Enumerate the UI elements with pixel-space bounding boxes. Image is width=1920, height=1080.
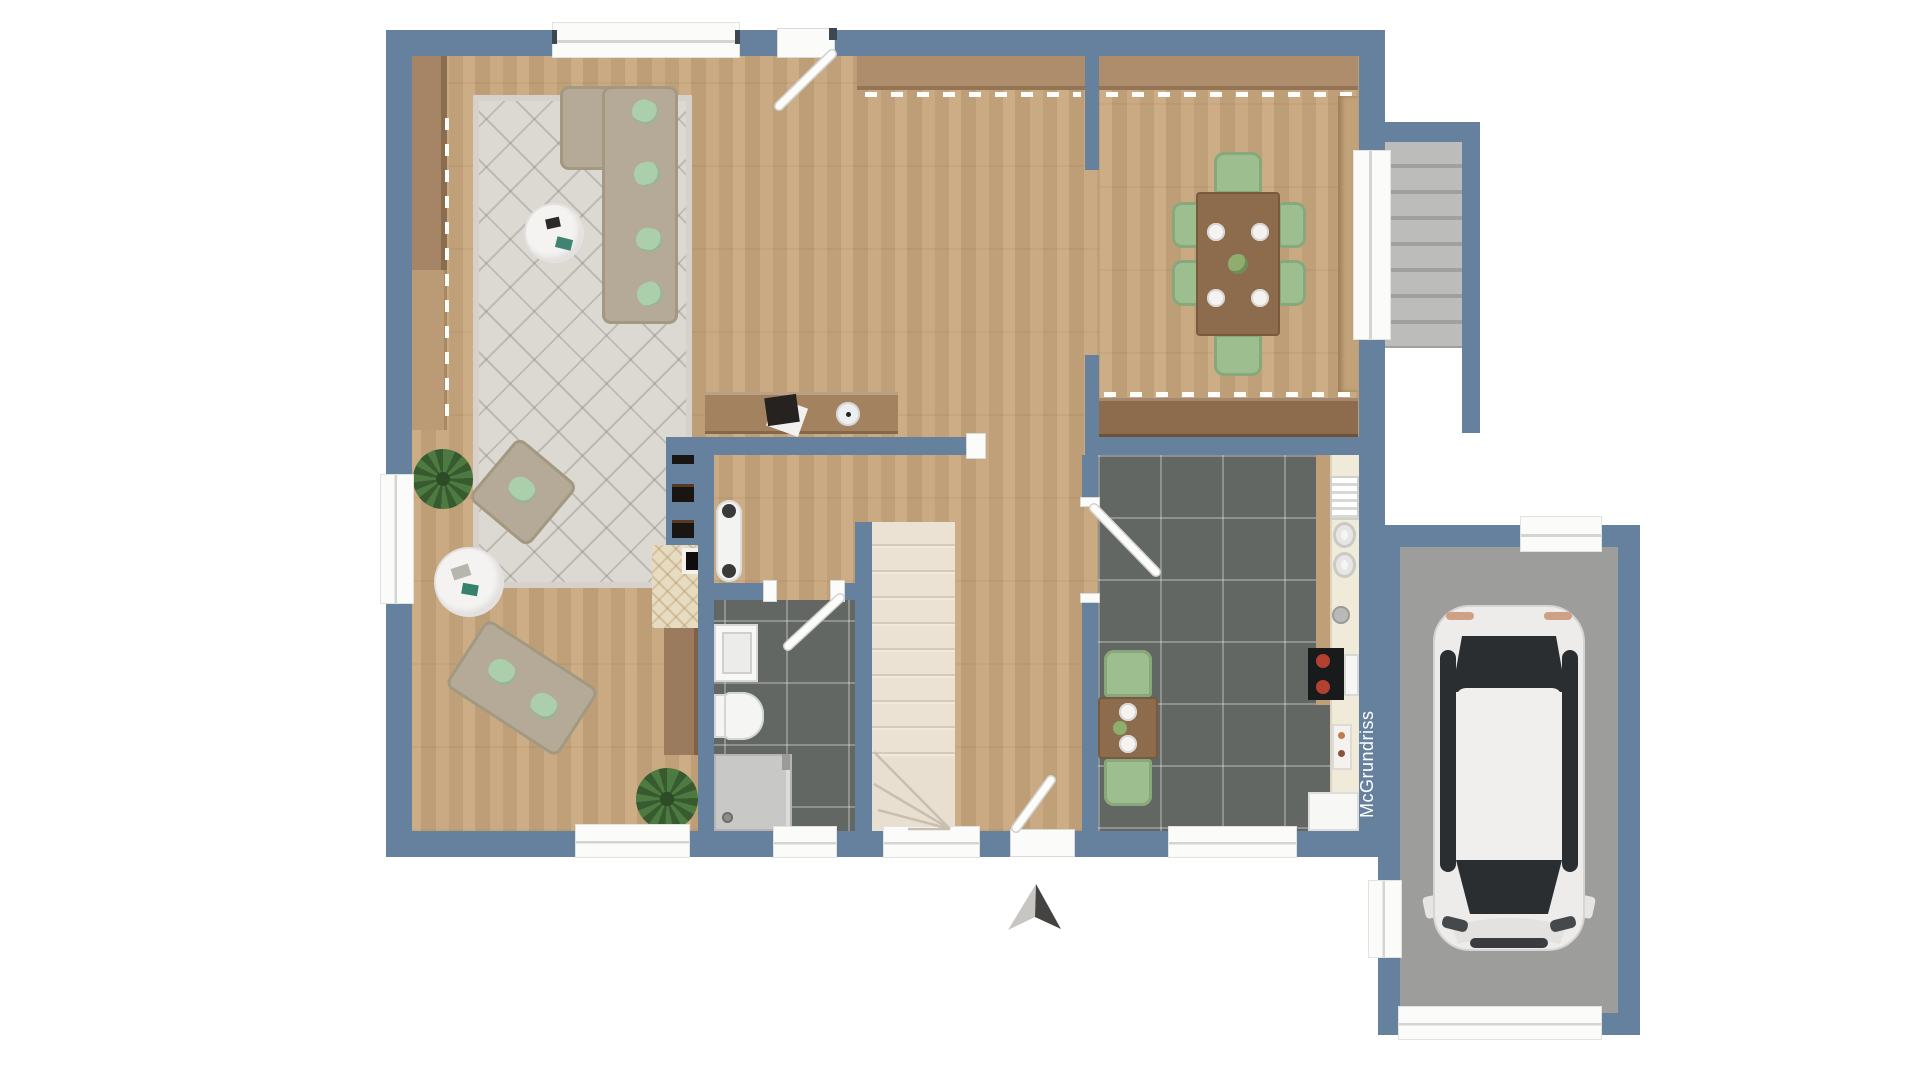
door-top-hinge [829, 28, 837, 40]
ceiling-dashed-line [445, 118, 449, 430]
shelf-box-3 [672, 520, 694, 538]
sideboard-west-lower [408, 270, 447, 430]
window-bottom-hall [883, 826, 980, 858]
kitchen-sink-basin-1 [1333, 522, 1356, 548]
desk-tv-box [764, 394, 800, 426]
desk-disc-dot [846, 412, 851, 417]
window-bottom-kitchen [1168, 826, 1297, 858]
sideboard-dining-dashes [1104, 392, 1354, 397]
kitchen-plate-1 [1119, 703, 1137, 721]
dining-chair-right-1 [1278, 202, 1306, 248]
kitchen-table-deco [1113, 721, 1127, 735]
wall-bathroom-west [698, 455, 714, 831]
radiator-cap-top [722, 504, 736, 518]
jamb-bath-door-right [830, 580, 845, 602]
window-bottom-bath [773, 826, 837, 858]
kitchen-sink-drainer [1332, 478, 1357, 518]
window-top-living [552, 22, 740, 58]
wall-mid-horizontal [666, 437, 986, 455]
kitchen-bowl [1332, 606, 1350, 624]
toilet-bowl [724, 692, 764, 740]
floor-garage [1400, 547, 1618, 1013]
wardrobe-hall [857, 56, 1085, 90]
garage-main-door [1398, 1006, 1602, 1040]
wall-dining-partition-bottom [1085, 355, 1099, 439]
cabinet-brown [664, 628, 698, 755]
wardrobe-dining-dashes [1106, 92, 1354, 97]
kitchen-plate-2 [1119, 735, 1137, 753]
dining-chair-top [1214, 152, 1262, 194]
wardrobe-dining [1099, 56, 1358, 90]
wall-dining-south [1085, 437, 1385, 455]
dining-plate-2 [1251, 223, 1269, 241]
jamb-mid-wall-end [966, 433, 986, 459]
exterior-stairs [1385, 142, 1462, 348]
wall-west [386, 30, 412, 857]
sideboard-west-upper [408, 56, 447, 270]
dining-plate-4 [1251, 289, 1269, 307]
plant-hall [636, 768, 698, 830]
door-east-entry [1353, 150, 1391, 340]
door-opening-bottom-entry [1010, 829, 1075, 857]
cooktop-burner-1 [1316, 654, 1330, 668]
jamb-bath-door-left [763, 580, 777, 602]
dining-centerpiece [1228, 254, 1248, 274]
door-opening-top [777, 28, 835, 58]
stairs-straight [872, 522, 955, 758]
kitchen-item-dot-1 [1338, 732, 1345, 739]
kitchen-item-dot-2 [1338, 750, 1345, 757]
shower-faucet [782, 754, 790, 770]
coffee-table [526, 205, 582, 261]
side-table [436, 549, 502, 615]
dining-chair-right-2 [1278, 260, 1306, 306]
bath-vanity-basin [722, 632, 752, 674]
door-garage-side [1368, 880, 1402, 958]
wall-stair-west [855, 522, 872, 831]
kitchen-small-items [1332, 724, 1352, 770]
watermark-text: McGrundriss [1354, 686, 1382, 842]
kitchen-chair-bottom [1104, 759, 1152, 806]
window-bottom-living [575, 824, 690, 858]
wall-ext-stair-right [1462, 122, 1480, 433]
wall-kitchen-west-lower [1082, 600, 1098, 831]
kitchen-dishwasher [1308, 792, 1359, 831]
floorplan-canvas: McGrundriss [0, 0, 1920, 1080]
dining-plate-1 [1207, 223, 1225, 241]
stairs-winder [872, 758, 955, 831]
dining-plate-3 [1207, 289, 1225, 307]
shower-drain [722, 812, 733, 823]
shelf-box-2 [672, 484, 694, 502]
kitchen-sink-basin-2 [1333, 552, 1356, 578]
window-top-marker-left [552, 30, 557, 44]
north-arrow-icon [1008, 884, 1061, 930]
window-west [380, 474, 414, 604]
kitchen-chair-top [1104, 650, 1152, 697]
jamb-kitchen-door-top [1080, 497, 1100, 507]
window-garage-top [1520, 516, 1602, 552]
jamb-kitchen-door-bottom [1080, 593, 1100, 603]
dining-chair-bottom [1214, 334, 1262, 376]
wall-dining-partition-top [1085, 56, 1099, 170]
radiator-cap-bottom [722, 564, 736, 578]
wall-top [386, 30, 1385, 56]
plant-northwest [413, 449, 473, 509]
sideboard-dining [1099, 398, 1358, 437]
wall-garage-right [1618, 525, 1640, 1035]
window-top-marker-right [735, 30, 740, 44]
wardrobe-hall-dashes [865, 92, 1081, 97]
cooktop-burner-2 [1316, 680, 1330, 694]
